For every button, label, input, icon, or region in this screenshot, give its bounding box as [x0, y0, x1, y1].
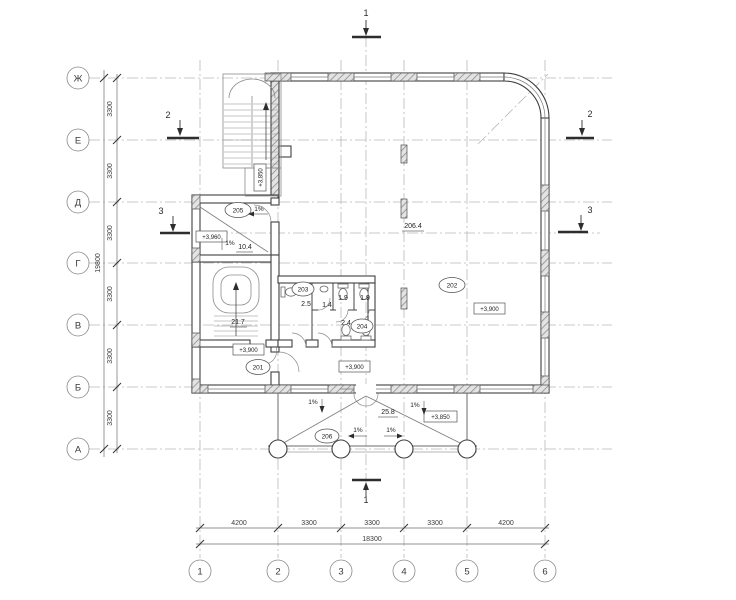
room-tag-204: 204 — [357, 324, 368, 331]
porch — [268, 393, 477, 458]
grid-row-label-6: А — [75, 445, 82, 456]
room-tag-202: 202 — [447, 283, 458, 290]
grid-row-label-0: Ж — [74, 74, 83, 85]
dim-bottom-4: 4200 — [498, 520, 514, 527]
dim-bottom-3: 3300 — [427, 520, 443, 527]
dim-left-0: 3300 — [107, 101, 114, 117]
wall-wc-north — [278, 276, 375, 283]
grid-col-label-3: 4 — [401, 567, 406, 578]
area-202: 206.4 — [404, 223, 422, 230]
section-right3-label: 3 — [587, 205, 592, 215]
area-stall-1: 1.9 — [338, 295, 348, 302]
area-205: 10.4 — [238, 244, 252, 251]
dim-left-5: 3300 — [107, 410, 114, 426]
grid-row-label-1: Е — [75, 136, 81, 147]
dim-bottom-total: 18300 — [362, 536, 382, 543]
column-pier-1 — [401, 145, 407, 163]
wall-205-south — [192, 255, 278, 262]
dim-bottom-2: 3300 — [364, 520, 380, 527]
room-tag-205: 205 — [233, 208, 244, 215]
grid-col-label-1: 2 — [275, 567, 280, 578]
grid-row-label-4: В — [75, 321, 81, 332]
grid-col-label-0: 1 — [197, 567, 202, 578]
area-wc-lobby: 1.4 — [322, 302, 332, 309]
wall-west-upper — [271, 81, 279, 198]
room-tag-203: 203 — [298, 287, 309, 294]
floor-plan-canvas: 1 1 2 2 3 3 3300 3300 3300 3300 3300 330… — [0, 0, 736, 600]
level-206: +3,850 — [431, 415, 450, 421]
porch-column-4 — [458, 440, 476, 458]
room-tag-206: 206 — [322, 434, 333, 441]
area-stall-2: 1.9 — [360, 295, 370, 302]
level-205: +3,960 — [202, 235, 221, 241]
slope-205-top: 1% — [254, 206, 264, 213]
sink-2 — [320, 286, 328, 292]
slope-205-in: 1% — [225, 240, 235, 247]
dim-left-3: 3300 — [107, 286, 114, 302]
dim-bottom-0: 4200 — [231, 520, 247, 527]
slope-porch-e: 1% — [386, 427, 396, 434]
section-left3-label: 3 — [158, 206, 163, 216]
area-201: 21.7 — [231, 319, 245, 326]
area-wc-corridor: 2.4 — [341, 320, 351, 327]
door-lobby — [279, 352, 299, 372]
grid-row-label-3: Г — [75, 259, 80, 270]
dim-bottom-1: 3300 — [301, 520, 317, 527]
porch-column-2 — [332, 440, 350, 458]
column-pier-3 — [401, 288, 407, 309]
column-pier-2 — [401, 199, 407, 218]
area-206: 25.8 — [381, 409, 395, 416]
slope-labels: 1% 1% 1% 1% 1% 1% — [222, 206, 427, 439]
level-stair-landing: +3,850 — [259, 168, 265, 187]
grid-col-label-4: 5 — [464, 567, 469, 578]
section-left2-label: 2 — [165, 110, 170, 120]
room-tag-201: 201 — [253, 365, 264, 372]
dim-left-1: 3300 — [107, 163, 114, 179]
level-201: +3,900 — [239, 348, 258, 354]
slope-porch-nw: 1% — [308, 399, 318, 406]
corner-axis-line — [478, 74, 548, 144]
dim-left-4: 3300 — [107, 348, 114, 364]
slope-porch-ne: 1% — [410, 402, 420, 409]
level-202: +3,900 — [480, 307, 499, 313]
dim-left-2: 3300 — [107, 225, 114, 241]
section-top-label: 1 — [363, 8, 368, 18]
section-right2-label: 2 — [587, 109, 592, 119]
area-203: 2.5 — [301, 301, 311, 308]
grid-row-label-5: Б — [75, 383, 81, 394]
grid-col-label-2: 3 — [338, 567, 343, 578]
porch-column-3 — [395, 440, 413, 458]
grid-col-label-5: 6 — [542, 567, 547, 578]
floor-plan-drawing: 1 1 2 2 3 3 3300 3300 3300 3300 3300 330… — [0, 0, 736, 600]
porch-column-1 — [269, 440, 287, 458]
level-hall-south: +3,900 — [345, 365, 364, 371]
slope-porch-w: 1% — [353, 427, 363, 434]
dim-left-total: 19800 — [95, 253, 102, 273]
grid-row-label-2: Д — [75, 198, 82, 209]
